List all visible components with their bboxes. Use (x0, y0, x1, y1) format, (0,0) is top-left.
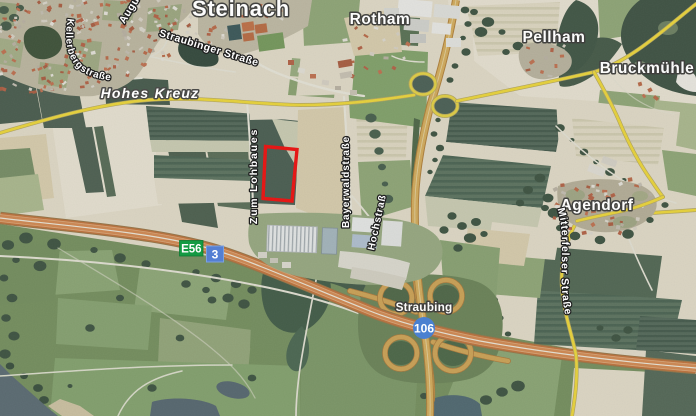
svg-text:Steinach: Steinach (192, 0, 290, 21)
svg-text:Pellham: Pellham (523, 29, 586, 46)
svg-text:106: 106 (414, 322, 434, 336)
svg-text:3: 3 (212, 248, 219, 262)
svg-text:Zum Lohbaues: Zum Lohbaues (248, 128, 260, 224)
svg-text:Agendorf: Agendorf (561, 197, 634, 214)
svg-text:Bayerwaldstraße: Bayerwaldstraße (341, 136, 352, 228)
svg-text:E56: E56 (181, 244, 201, 256)
svg-text:Hohes Kreuz: Hohes Kreuz (101, 85, 200, 101)
svg-text:Bruckmühle: Bruckmühle (600, 60, 695, 77)
svg-text:Straubing: Straubing (396, 300, 453, 314)
svg-text:Rotham: Rotham (350, 11, 411, 28)
